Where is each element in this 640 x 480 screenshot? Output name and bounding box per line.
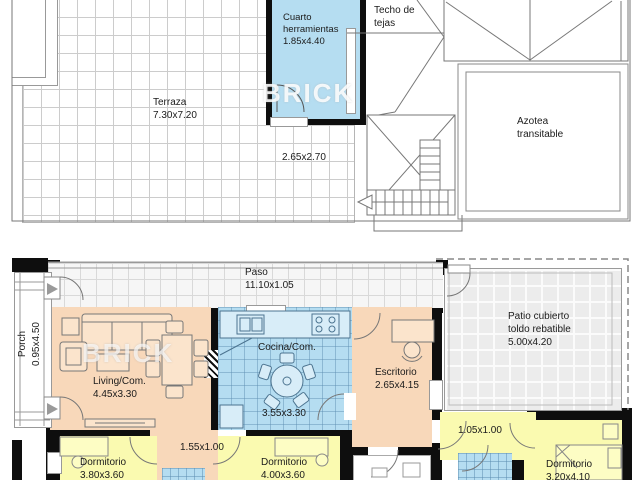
wall [622, 420, 632, 480]
cocina-paso-window [246, 305, 286, 313]
label-living: Living/Com. 4.45x3.30 [93, 375, 146, 401]
floor-plan: Terraza 7.30x7.20 Cuarto herramientas 1.… [0, 0, 640, 480]
label-hall-center: 1.55x1.00 [180, 441, 224, 454]
staircase [358, 115, 455, 215]
wall [12, 440, 22, 480]
label-techo-tejas: Techo de tejas [374, 4, 415, 30]
bath-center-floor [162, 468, 205, 480]
azotea-outline [458, 64, 628, 219]
label-escritorio: Escritorio 2.65x4.15 [375, 366, 419, 392]
cuarto-door-threshold [270, 117, 308, 127]
brick-watermark-upper: BRICK [262, 78, 354, 109]
label-cocina: Cocina/Com. [258, 341, 316, 354]
label-hueco-escalera: 2.65x2.70 [282, 151, 326, 164]
wall [12, 258, 48, 272]
label-porch: Porch 0.95x4.50 [16, 292, 46, 396]
label-dormitorio1: Dormitorio 3.80x3.60 [80, 456, 126, 480]
label-terraza: Terraza 7.30x7.20 [153, 96, 197, 122]
label-patio: Patio cubierto toldo rebatible 5.00x4.20 [508, 310, 571, 349]
label-cuarto-herramientas: Cuarto herramientas 1.85x4.40 [283, 12, 338, 48]
dormitorio1-window [47, 452, 62, 474]
bath-right-floor [458, 453, 512, 480]
brick-watermark-lower: BRICK [82, 338, 174, 369]
label-azotea: Azotea transitable [517, 115, 563, 141]
escritorio-window [429, 380, 443, 410]
terraza-notch-inner [12, 0, 46, 78]
label-hall-right: 1.05x1.00 [458, 424, 502, 437]
label-cocina-dims: 3.55x3.30 [262, 407, 306, 420]
label-dormitorio2: Dormitorio 4.00x3.60 [261, 456, 307, 480]
bath-white-floor [353, 455, 431, 480]
cocina-escritorio-door-gap [344, 393, 356, 420]
duct-hatch [204, 350, 218, 378]
label-dormitorio3: Dormitorio 3.20x4.10 [546, 458, 592, 480]
label-paso: Paso 11.10x1.05 [245, 266, 294, 292]
